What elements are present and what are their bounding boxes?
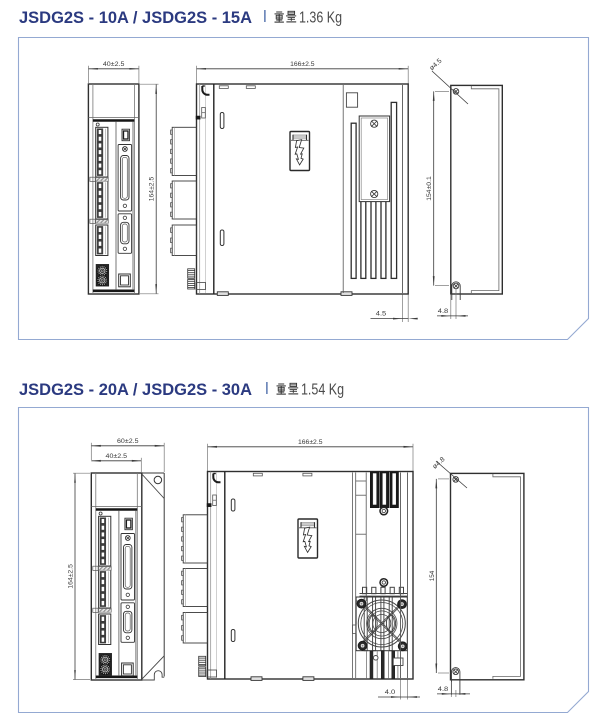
svg-text:JSDG2S - 20A / JSDG2S - 30A: JSDG2S - 20A / JSDG2S - 30A	[19, 381, 252, 399]
svg-text:4.0: 4.0	[385, 689, 396, 696]
svg-text:154: 154	[429, 570, 436, 581]
svg-text:60±2.5: 60±2.5	[117, 438, 139, 445]
svg-text:164±2.5: 164±2.5	[149, 177, 156, 202]
svg-text:4.8: 4.8	[438, 686, 449, 693]
svg-text:4.8: 4.8	[438, 308, 449, 315]
svg-text:166±2.5: 166±2.5	[290, 61, 315, 68]
svg-text:154±0.1: 154±0.1	[426, 176, 433, 201]
svg-text:40±2.5: 40±2.5	[106, 453, 128, 460]
svg-text:166±2.5: 166±2.5	[298, 439, 323, 446]
svg-text:JSDG2S - 10A / JSDG2S - 15A: JSDG2S - 10A / JSDG2S - 15A	[19, 9, 252, 27]
svg-text:4.5: 4.5	[376, 311, 387, 318]
svg-text:164±2.5: 164±2.5	[68, 564, 75, 589]
svg-text:1.54 Kg: 1.54 Kg	[301, 382, 344, 399]
svg-text:1.36 Kg: 1.36 Kg	[299, 10, 342, 27]
svg-text:40±2.5: 40±2.5	[103, 61, 125, 68]
